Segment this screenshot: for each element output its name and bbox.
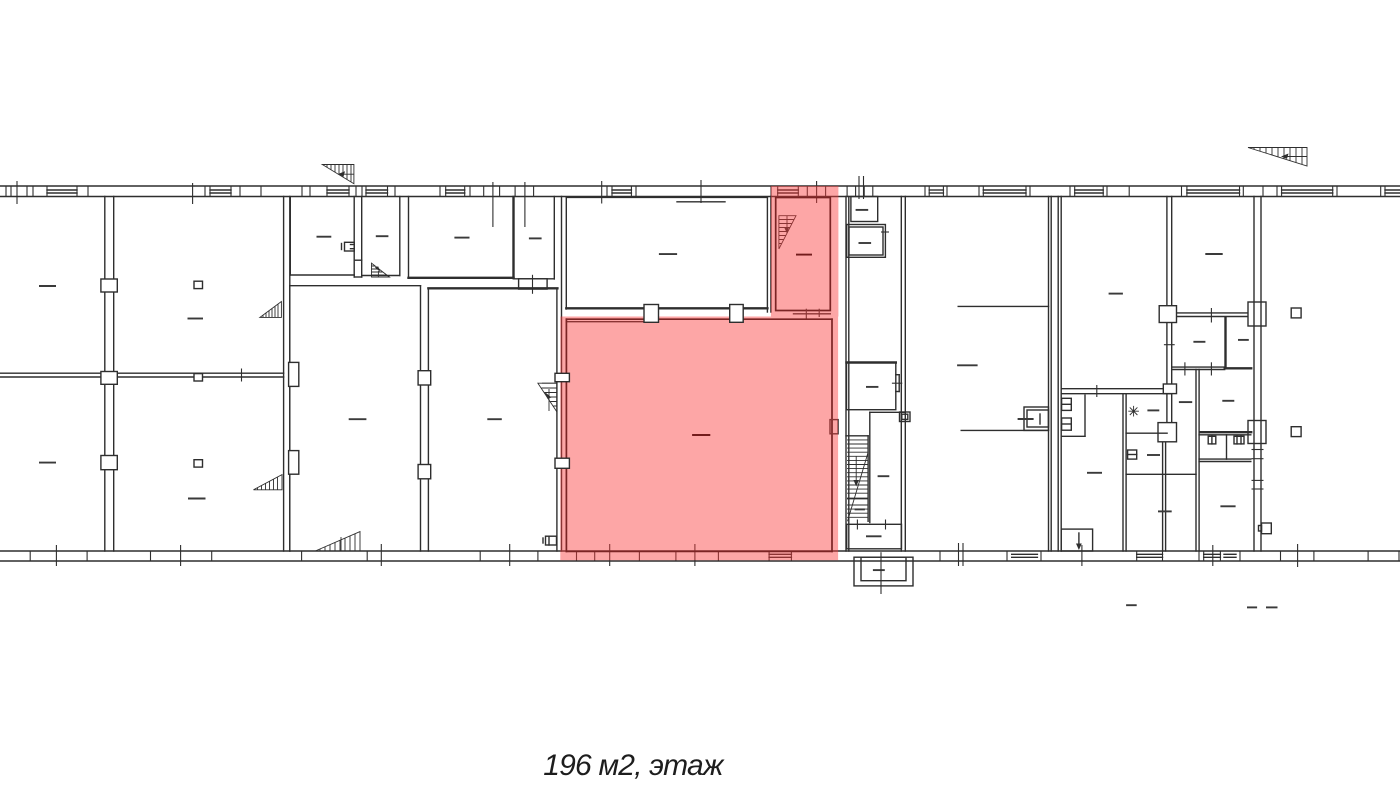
svg-text:196 м2, этаж: 196 м2, этаж xyxy=(543,749,725,782)
